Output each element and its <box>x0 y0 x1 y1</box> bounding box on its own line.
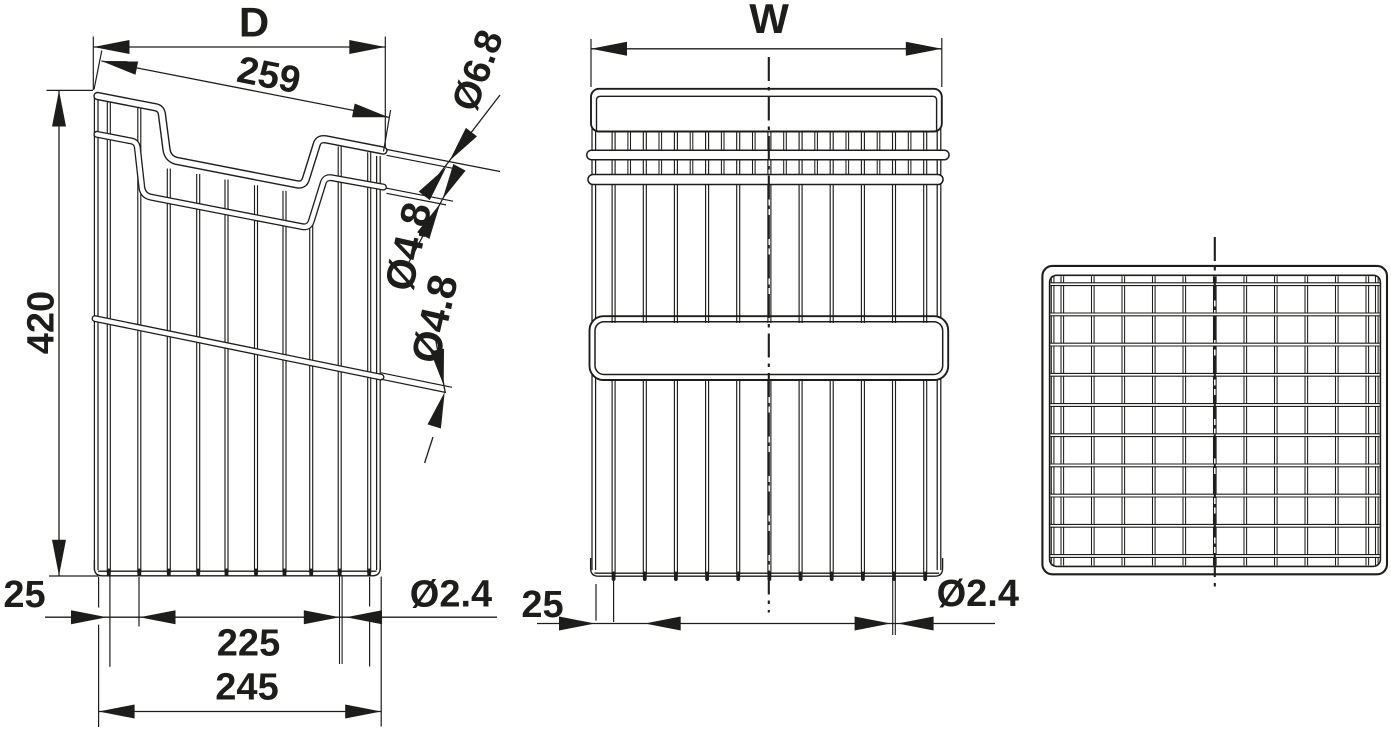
svg-text:25: 25 <box>3 574 45 616</box>
svg-text:Ø2.4: Ø2.4 <box>937 573 1019 615</box>
svg-text:Ø2.4: Ø2.4 <box>410 574 492 616</box>
svg-text:225: 225 <box>217 623 280 665</box>
svg-text:D: D <box>239 0 269 46</box>
svg-text:420: 420 <box>20 291 62 354</box>
svg-text:W: W <box>749 0 789 42</box>
svg-text:25: 25 <box>521 584 563 626</box>
svg-text:245: 245 <box>215 667 278 709</box>
